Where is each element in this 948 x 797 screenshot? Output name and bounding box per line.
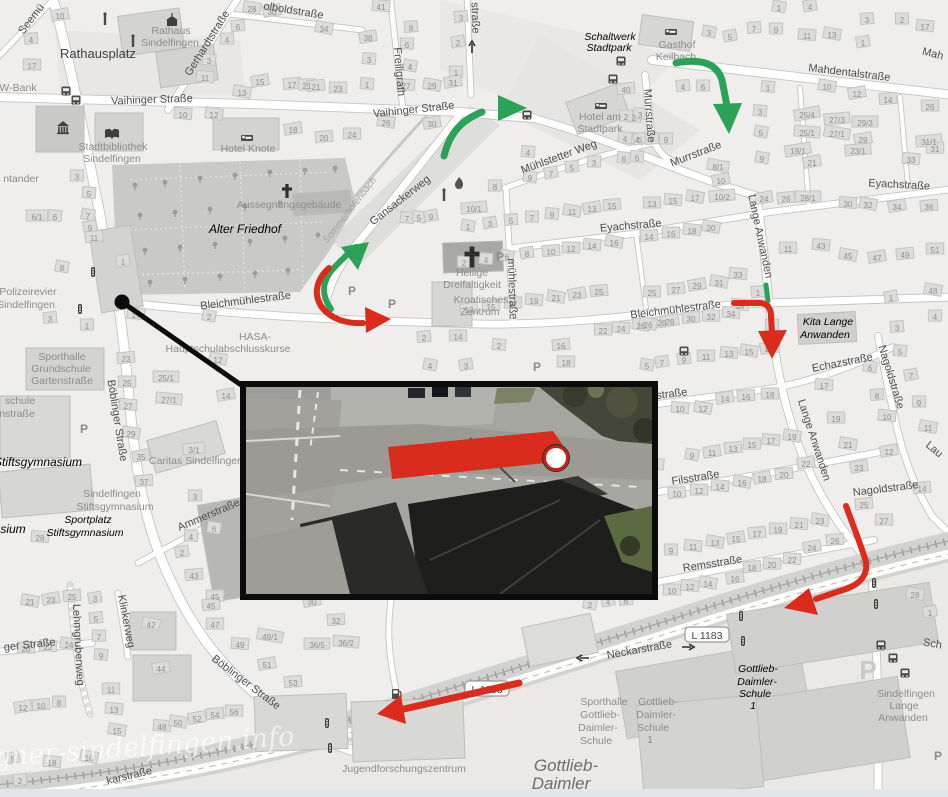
house-number: 9 xyxy=(760,155,765,164)
svg-text:P: P xyxy=(859,655,876,685)
house-number: 10 xyxy=(668,587,677,596)
house-number: 1 xyxy=(928,609,933,618)
house-number: 16 xyxy=(738,479,747,488)
house-number: 25/1 xyxy=(158,374,174,383)
house-number: 7 xyxy=(660,359,665,368)
house-number: 9 xyxy=(550,211,555,220)
house-number: 14 xyxy=(588,242,597,251)
house-number: 13 xyxy=(648,200,657,209)
tree-icon xyxy=(286,268,291,273)
house-number: 11 xyxy=(107,686,116,695)
svg-text:P: P xyxy=(388,297,396,311)
house-number: 16 xyxy=(742,393,751,402)
house-number: 3 xyxy=(367,56,372,65)
house-number: 25 xyxy=(123,379,132,388)
place-label: nstraße xyxy=(0,408,35,420)
place-label: schule xyxy=(5,395,36,407)
tree-icon xyxy=(208,207,213,212)
house-number: 22 xyxy=(802,460,811,469)
house-number: 32 xyxy=(864,201,873,210)
house-number: 29 xyxy=(693,282,702,291)
tree-icon xyxy=(173,210,178,215)
house-number: 7 xyxy=(909,372,914,381)
house-number: 2 xyxy=(900,16,905,25)
house-number: 15 xyxy=(256,78,265,87)
place-label: Schule xyxy=(580,735,612,747)
bus-stop-icon xyxy=(889,654,898,663)
hotel-icon xyxy=(241,135,253,141)
house-number: 15 xyxy=(745,348,754,357)
house-number: 3 xyxy=(93,595,98,604)
house-number: 28 xyxy=(36,534,45,543)
traffic-light-icon xyxy=(91,267,95,277)
place-label: Kita Lange xyxy=(803,316,853,328)
house-number: 7 xyxy=(549,170,554,179)
house-number: 12 xyxy=(885,448,894,457)
place-label: Schule xyxy=(739,688,771,700)
house-number: 5 xyxy=(94,615,99,624)
house-number: 10 xyxy=(823,83,832,92)
house-number: 4 xyxy=(484,256,489,265)
place-label: HASA- xyxy=(239,331,272,343)
house-number: 25 xyxy=(648,289,657,298)
house-number: 14 xyxy=(716,483,725,492)
house-number: 1 xyxy=(466,223,471,232)
house-number: 3 xyxy=(193,493,198,502)
house-number: 7 xyxy=(86,212,91,221)
place-label: Daimler- xyxy=(636,709,676,721)
street-label: straße xyxy=(468,2,481,34)
place-label: Sporthalle xyxy=(580,696,627,708)
house-number: 27 xyxy=(124,402,133,411)
house-number: 11 xyxy=(568,208,577,217)
house-number: 12 xyxy=(214,356,223,365)
route-green-stub-lange-anwanden xyxy=(766,285,768,301)
house-number: 29 xyxy=(859,136,868,145)
parking-icon: P xyxy=(388,297,396,311)
tree-icon xyxy=(213,242,218,247)
house-number: 4 xyxy=(189,533,194,542)
house-number: 26 xyxy=(382,119,391,128)
tree-icon xyxy=(183,277,188,282)
house-number: 15 xyxy=(748,441,757,450)
house-number: 18 xyxy=(766,391,775,400)
parking-icon: P xyxy=(533,360,541,374)
house-number: 31 xyxy=(715,279,724,288)
house-number: 25/1 xyxy=(799,129,815,138)
house-number: 4 xyxy=(225,36,230,45)
house-number: 26 xyxy=(644,321,653,330)
house-number: 2 xyxy=(18,777,23,786)
house-number: 51 xyxy=(931,246,940,255)
house-number: 23 xyxy=(816,517,825,526)
house-number: 18 xyxy=(289,126,298,135)
bus-stop-icon xyxy=(617,57,626,66)
house-number: 19/1 xyxy=(790,147,806,156)
house-number: 21 xyxy=(26,598,35,607)
house-number: 12 xyxy=(686,583,695,592)
bus-stop-icon xyxy=(901,669,910,678)
house-number: 21 xyxy=(808,159,817,168)
bus-stop-icon xyxy=(523,111,532,120)
house-number: 36/5 xyxy=(309,641,325,650)
place-label: Hotel am xyxy=(579,111,621,123)
house-number: 14 xyxy=(645,233,654,242)
house-number: 10 xyxy=(547,248,556,257)
house-number: 1 xyxy=(365,81,370,90)
bus-stop-icon xyxy=(877,641,886,650)
place-label: Anwanden xyxy=(799,329,850,341)
house-number: 14 xyxy=(222,392,231,401)
house-number: 9 xyxy=(774,26,779,35)
house-number: 18 xyxy=(758,475,767,484)
house-number: 4 xyxy=(428,362,433,371)
tree-icon xyxy=(233,173,238,178)
house-number: 2 xyxy=(422,334,427,343)
house-number: 2 xyxy=(497,342,502,351)
tree-icon xyxy=(143,248,148,253)
house-number: 3/1 xyxy=(188,446,200,455)
tree-icon xyxy=(268,170,273,175)
house-number: 44 xyxy=(157,665,166,674)
house-number: 20 xyxy=(768,561,777,570)
traffic-light-icon xyxy=(325,718,329,728)
house-number: 3 xyxy=(895,324,900,333)
house-number: 27 xyxy=(672,286,681,295)
house-number: 20 xyxy=(707,224,716,233)
house-number: 51 xyxy=(263,661,272,670)
house-number: 13 xyxy=(711,539,720,548)
place-label: Lange xyxy=(889,700,918,712)
house-number: 25 xyxy=(595,288,604,297)
place-label: Sindelfingen xyxy=(877,688,935,700)
house-number: 35 xyxy=(137,453,146,462)
house-number: 21 xyxy=(795,521,804,530)
place-label: Schule xyxy=(637,722,669,734)
place-label: Heilige xyxy=(456,267,488,279)
house-number: 12 xyxy=(853,90,862,99)
house-number: 24 xyxy=(348,131,357,140)
house-number: 32 xyxy=(707,313,716,322)
tree-icon xyxy=(133,183,138,188)
house-number: 1 xyxy=(85,322,90,331)
place-label: Gottlieb- xyxy=(580,709,620,721)
house-number: 29 xyxy=(127,430,136,439)
house-number: 32 xyxy=(332,617,341,626)
house-number: 54 xyxy=(211,711,220,720)
house-number: 26 xyxy=(831,537,840,546)
house-number: 3 xyxy=(207,57,212,66)
place-label: Daimler- xyxy=(737,676,777,688)
house-number: 40 xyxy=(622,86,631,95)
house-number: 42 xyxy=(147,621,156,630)
place-label: Caritas Sindelfingen xyxy=(149,455,243,467)
inset-location-marker xyxy=(545,447,568,470)
house-number: 23 xyxy=(122,355,131,364)
tree-icon xyxy=(178,245,183,250)
house-number: 10 xyxy=(676,405,685,414)
place-label: Sindelfingen xyxy=(83,153,141,165)
tree-icon xyxy=(283,236,288,241)
house-number: 4 xyxy=(526,149,531,158)
house-number: 31 xyxy=(449,79,458,88)
house-number: 17 xyxy=(28,62,37,71)
house-number: 20 xyxy=(780,471,789,480)
house-number: 25 xyxy=(68,593,77,602)
house-number: 37 xyxy=(140,478,149,487)
bus-stop-icon xyxy=(609,75,618,84)
house-number: 19 xyxy=(774,526,783,535)
house-number: 50 xyxy=(174,719,183,728)
house-number: 21 xyxy=(312,83,321,92)
house-number: 3 xyxy=(48,315,53,324)
place-label: Polizeirevier xyxy=(0,286,57,298)
svg-text:P: P xyxy=(348,284,356,298)
house-number: 3 xyxy=(592,159,597,168)
house-number: 10 xyxy=(56,12,65,21)
house-number: 10 xyxy=(883,413,892,422)
house-number: 3 xyxy=(638,111,643,120)
parked-car xyxy=(408,388,425,398)
house-number: 11 xyxy=(708,449,717,458)
house-number: 16 xyxy=(557,342,566,351)
house-number: 27 xyxy=(880,517,889,526)
svg-text:P: P xyxy=(80,422,88,436)
house-number: 8 xyxy=(493,183,498,192)
house-number: 17 xyxy=(921,23,930,32)
parking-icon: P xyxy=(934,749,942,763)
house-number: 26 xyxy=(926,103,935,112)
house-number: 14 xyxy=(704,580,713,589)
house-number: 3 xyxy=(865,16,870,25)
hotel-icon xyxy=(665,29,677,35)
house-number: 17 xyxy=(288,81,297,90)
house-number: 8 xyxy=(525,250,530,259)
house-number: 6 xyxy=(868,364,873,373)
house-number: 10/1 xyxy=(466,205,482,214)
house-number: 6 xyxy=(405,41,410,50)
house-number: 11 xyxy=(702,353,711,362)
house-number: 30 xyxy=(428,120,437,129)
place-label: Dreifaltigkeit xyxy=(443,279,501,291)
traffic-light-icon xyxy=(741,636,745,646)
house-number: 11 xyxy=(784,245,793,254)
house-number: 12 xyxy=(695,487,704,496)
house-number: 9 xyxy=(664,136,669,145)
house-number: 45 xyxy=(207,602,216,611)
building xyxy=(36,106,84,152)
tree-icon xyxy=(138,213,143,218)
bus-stop-icon xyxy=(62,87,71,96)
house-number: 22 xyxy=(788,556,797,565)
house-number: 26 xyxy=(782,195,791,204)
house-number: 53 xyxy=(289,679,298,688)
house-number: 23 xyxy=(855,464,864,473)
house-number: 24 xyxy=(760,195,769,204)
house-number: 2 xyxy=(207,313,212,322)
house-number: 45 xyxy=(844,252,853,261)
house-number: 45 xyxy=(211,593,220,602)
house-number: 10/2 xyxy=(714,193,730,202)
parked-car xyxy=(432,387,448,397)
house-number: 8 xyxy=(875,392,880,401)
place-label: Alter Friedhof xyxy=(208,222,283,236)
house-number: 18 xyxy=(562,359,571,368)
house-number: 47 xyxy=(873,254,882,263)
house-number: 12 xyxy=(210,111,219,120)
house-number: 10 xyxy=(37,702,46,711)
house-number: 7 xyxy=(530,214,535,223)
parking-icon: P xyxy=(348,284,356,298)
traffic-light-icon xyxy=(739,611,743,621)
house-number: 1 xyxy=(121,258,126,267)
house-number: 5 xyxy=(645,362,650,371)
callout-dot xyxy=(115,295,130,310)
tree-icon xyxy=(148,280,153,285)
place-label: Stadtpark xyxy=(578,123,624,135)
place-label: 1 xyxy=(647,734,653,746)
house-number: 9 xyxy=(682,356,687,365)
house-number: 15 xyxy=(608,202,617,211)
house-number: 9 xyxy=(917,399,922,408)
house-number: 27/1 xyxy=(829,130,845,139)
house-number: 28 xyxy=(666,318,675,327)
house-number: 13 xyxy=(729,445,738,454)
house-number: 36/2 xyxy=(338,639,354,648)
house-number: 11 xyxy=(803,32,812,41)
house-number: 3 xyxy=(464,362,469,371)
house-number: 43 xyxy=(190,572,199,581)
house-number: 7 xyxy=(752,25,757,34)
house-number: 9 xyxy=(429,213,434,222)
house-number: 10 xyxy=(179,111,188,120)
house-number: 14 xyxy=(884,96,893,105)
house-number: 13 xyxy=(828,31,837,40)
place-label: sium xyxy=(0,522,25,536)
house-number: 9 xyxy=(88,224,93,233)
place-label: Aussegnungsgebäude xyxy=(237,199,342,211)
house-number: 49 xyxy=(901,251,910,260)
parking-icon: P xyxy=(80,422,88,436)
house-number: 17 xyxy=(820,382,829,391)
house-number: 27/1 xyxy=(161,396,177,405)
house-number: 2 xyxy=(180,549,185,558)
house-number: 10 xyxy=(717,177,726,186)
house-number: 1 xyxy=(756,289,761,298)
house-number: 2 xyxy=(456,39,461,48)
house-number: 12 xyxy=(699,405,708,414)
house-number: 17 xyxy=(767,437,776,446)
house-number: 34 xyxy=(893,203,902,212)
house-number: 8 xyxy=(60,264,65,273)
bus-stop-icon xyxy=(680,347,689,356)
house-number: 9 xyxy=(669,547,674,556)
house-number: 19 xyxy=(832,415,841,424)
place-label: Kroatisches xyxy=(454,294,509,306)
svg-text:P: P xyxy=(533,360,541,374)
house-number: 20 xyxy=(320,134,329,143)
house-number: 28/1 xyxy=(800,194,816,203)
house-number: 3 xyxy=(707,29,712,38)
house-number: 11 xyxy=(201,74,210,83)
tree-icon xyxy=(163,180,168,185)
house-number: 2 xyxy=(624,113,629,122)
house-number: 11 xyxy=(924,424,933,433)
place-label: Hotel Knote xyxy=(221,143,276,155)
tree-icon xyxy=(218,274,223,279)
place-label: Grundschule xyxy=(31,363,91,375)
house-number: 6 xyxy=(635,154,640,163)
house-number: 49 xyxy=(236,641,245,650)
hotel-icon xyxy=(595,103,607,109)
house-number: 17 xyxy=(691,194,700,203)
house-number: 38 xyxy=(364,34,373,43)
place-label: W-Bank xyxy=(0,82,37,94)
house-number: 25 xyxy=(860,501,869,510)
house-number: 27/3 xyxy=(829,116,845,125)
place-label: Gottlieb- xyxy=(738,663,778,675)
place-label: Sporthalle xyxy=(38,351,85,363)
house-number: 24 xyxy=(617,325,626,334)
house-number: 4 xyxy=(808,3,813,12)
house-number: 4 xyxy=(408,63,413,72)
house-number: 25/4 xyxy=(799,111,815,120)
house-number: 52 xyxy=(193,715,202,724)
house-number: 49/1 xyxy=(262,633,278,642)
house-number: 30 xyxy=(687,315,696,324)
tree-icon xyxy=(253,271,258,276)
house-number: 23 xyxy=(573,291,582,300)
house-number: 4 xyxy=(29,36,34,45)
house-number: 33 xyxy=(734,271,743,280)
house-number: 3 xyxy=(758,108,763,117)
house-number: 43 xyxy=(817,242,826,251)
house-number: 48 xyxy=(929,287,938,296)
house-number: 18 xyxy=(688,227,697,236)
house-number: 3 xyxy=(488,220,493,229)
house-number: 34 xyxy=(320,25,329,34)
map-screenshot: PPPPPPP 10417328306411131517211012182024… xyxy=(0,0,948,797)
house-number: 22 xyxy=(599,327,608,336)
place-label: Jugendforschungszentrum xyxy=(342,763,466,775)
house-number: 8 xyxy=(57,699,62,708)
house-number: 9 xyxy=(99,652,104,661)
house-number: 19 xyxy=(788,433,797,442)
place-label: Sportplatz xyxy=(64,514,112,526)
house-number: 56 xyxy=(230,708,239,717)
tree-icon xyxy=(333,166,338,171)
place-label: Rathaus xyxy=(151,25,190,37)
house-number: 11 xyxy=(689,543,698,552)
house-number: 7 xyxy=(405,215,410,224)
place-label: Sindelfingen xyxy=(141,37,199,49)
house-number: 5 xyxy=(87,190,92,199)
house-number: 5 xyxy=(638,136,643,145)
place-label: Sindelfingen xyxy=(83,488,141,500)
traffic-light-icon xyxy=(874,599,878,609)
place-label: Zentrum xyxy=(460,306,499,318)
house-number: 7 xyxy=(97,633,102,642)
map-canvas[interactable]: PPPPPPP 10417328306411131517211012182024… xyxy=(0,0,948,797)
house-number: 15 xyxy=(732,535,741,544)
house-number: 3 xyxy=(459,14,464,23)
house-number: 1 xyxy=(861,39,866,48)
house-number: 2 xyxy=(632,114,637,123)
house-number: 12 xyxy=(19,704,28,713)
house-number: 6/1 xyxy=(31,213,43,222)
place-label: Sindelfingen xyxy=(0,299,55,311)
house-number: 1 xyxy=(889,294,894,303)
